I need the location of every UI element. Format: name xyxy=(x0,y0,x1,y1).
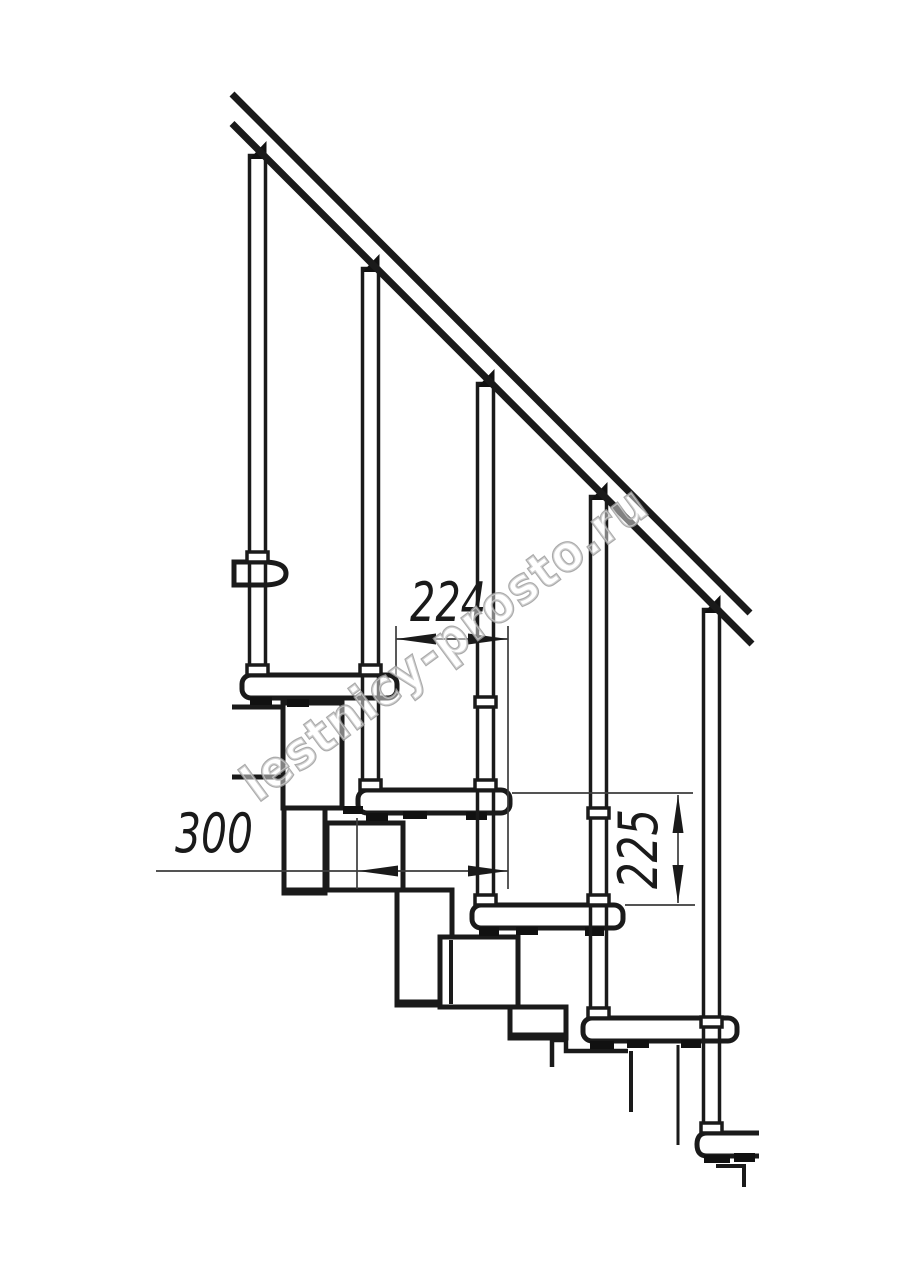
step-3 xyxy=(472,905,623,928)
module-box-2 xyxy=(327,823,403,890)
dimension-label-225: 225 xyxy=(607,809,670,889)
drawing-page: 224 300 225 lestnicy-prosto.ru xyxy=(0,0,914,1280)
dimension-label-300: 300 xyxy=(175,802,253,865)
staircase-technical-drawing: 224 300 225 lestnicy-prosto.ru xyxy=(0,0,914,1280)
module-column-1 xyxy=(284,808,325,893)
landing-nose xyxy=(234,562,286,585)
step-5 xyxy=(697,1133,759,1156)
step-2 xyxy=(358,790,510,813)
